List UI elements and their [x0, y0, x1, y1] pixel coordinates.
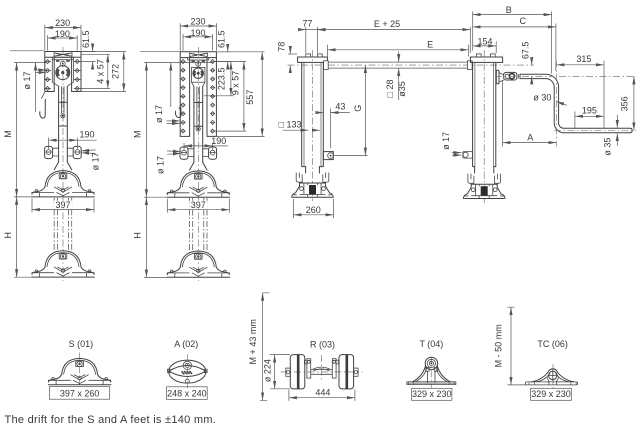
svg-text:ø 17: ø 17	[22, 71, 32, 89]
svg-text:A (02): A (02)	[174, 339, 198, 349]
svg-text:61.5: 61.5	[81, 30, 91, 48]
svg-text:356: 356	[619, 96, 629, 111]
svg-text:195: 195	[582, 106, 597, 116]
svg-text:230: 230	[190, 17, 205, 27]
svg-text:272: 272	[110, 64, 120, 79]
svg-text:315: 315	[576, 54, 591, 64]
svg-text:E + 25: E + 25	[374, 19, 400, 29]
svg-text:H: H	[133, 232, 143, 239]
svg-text:B: B	[506, 5, 512, 15]
svg-text:154: 154	[477, 36, 492, 46]
svg-text:9 x 57: 9 x 57	[231, 71, 241, 96]
svg-text:230: 230	[55, 18, 70, 28]
svg-text:The drift for the S and A feet: The drift for the S and A feet is ±140 m…	[5, 414, 217, 426]
svg-text:M: M	[133, 130, 143, 138]
svg-text:A: A	[527, 132, 533, 142]
svg-text:190: 190	[55, 29, 70, 39]
svg-text:61.5: 61.5	[216, 30, 226, 48]
svg-text:ø 30: ø 30	[533, 92, 551, 102]
svg-text:M - 50 mm: M - 50 mm	[494, 324, 504, 367]
svg-text:190: 190	[79, 129, 94, 139]
svg-text:67.5: 67.5	[520, 42, 530, 60]
svg-text:C: C	[520, 16, 527, 26]
svg-text:ø 35: ø 35	[603, 138, 613, 156]
svg-text:190: 190	[211, 136, 226, 146]
svg-text:□ 28: □ 28	[385, 80, 395, 98]
svg-text:ø 17: ø 17	[155, 156, 165, 174]
svg-text:S (01): S (01)	[69, 339, 94, 349]
svg-text:260: 260	[306, 205, 321, 215]
svg-text:557: 557	[245, 90, 255, 105]
svg-text:M + 43 mm: M + 43 mm	[248, 319, 258, 364]
svg-text:R (03): R (03)	[310, 339, 335, 349]
svg-text:M: M	[3, 130, 13, 138]
svg-text:248 x 240: 248 x 240	[167, 388, 207, 398]
svg-text:ø35: ø35	[397, 81, 407, 97]
svg-text:43: 43	[335, 102, 345, 112]
svg-text:223.5: 223.5	[216, 68, 226, 91]
svg-text:4 x 57: 4 x 57	[95, 59, 105, 84]
svg-text:G: G	[353, 105, 363, 112]
svg-text:H: H	[3, 232, 13, 239]
svg-text:77: 77	[302, 18, 312, 28]
svg-text:190: 190	[190, 28, 205, 38]
svg-text:397: 397	[55, 200, 70, 210]
svg-text:444: 444	[315, 388, 330, 398]
svg-text:ø 17: ø 17	[91, 152, 101, 170]
svg-text:329 x 230: 329 x 230	[412, 389, 452, 399]
svg-text:E: E	[427, 39, 433, 49]
svg-text:397: 397	[191, 200, 206, 210]
svg-text:397 x 260: 397 x 260	[60, 388, 100, 398]
svg-text:T (04): T (04)	[419, 339, 443, 349]
svg-text:TC (06): TC (06)	[537, 339, 568, 349]
svg-text:78: 78	[276, 42, 286, 52]
svg-text:ø 17: ø 17	[154, 105, 164, 123]
svg-text:ø 224: ø 224	[262, 359, 272, 382]
svg-text:□ 133: □ 133	[279, 119, 302, 129]
svg-text:329 x 230: 329 x 230	[531, 389, 571, 399]
svg-text:ø 17: ø 17	[441, 132, 451, 150]
